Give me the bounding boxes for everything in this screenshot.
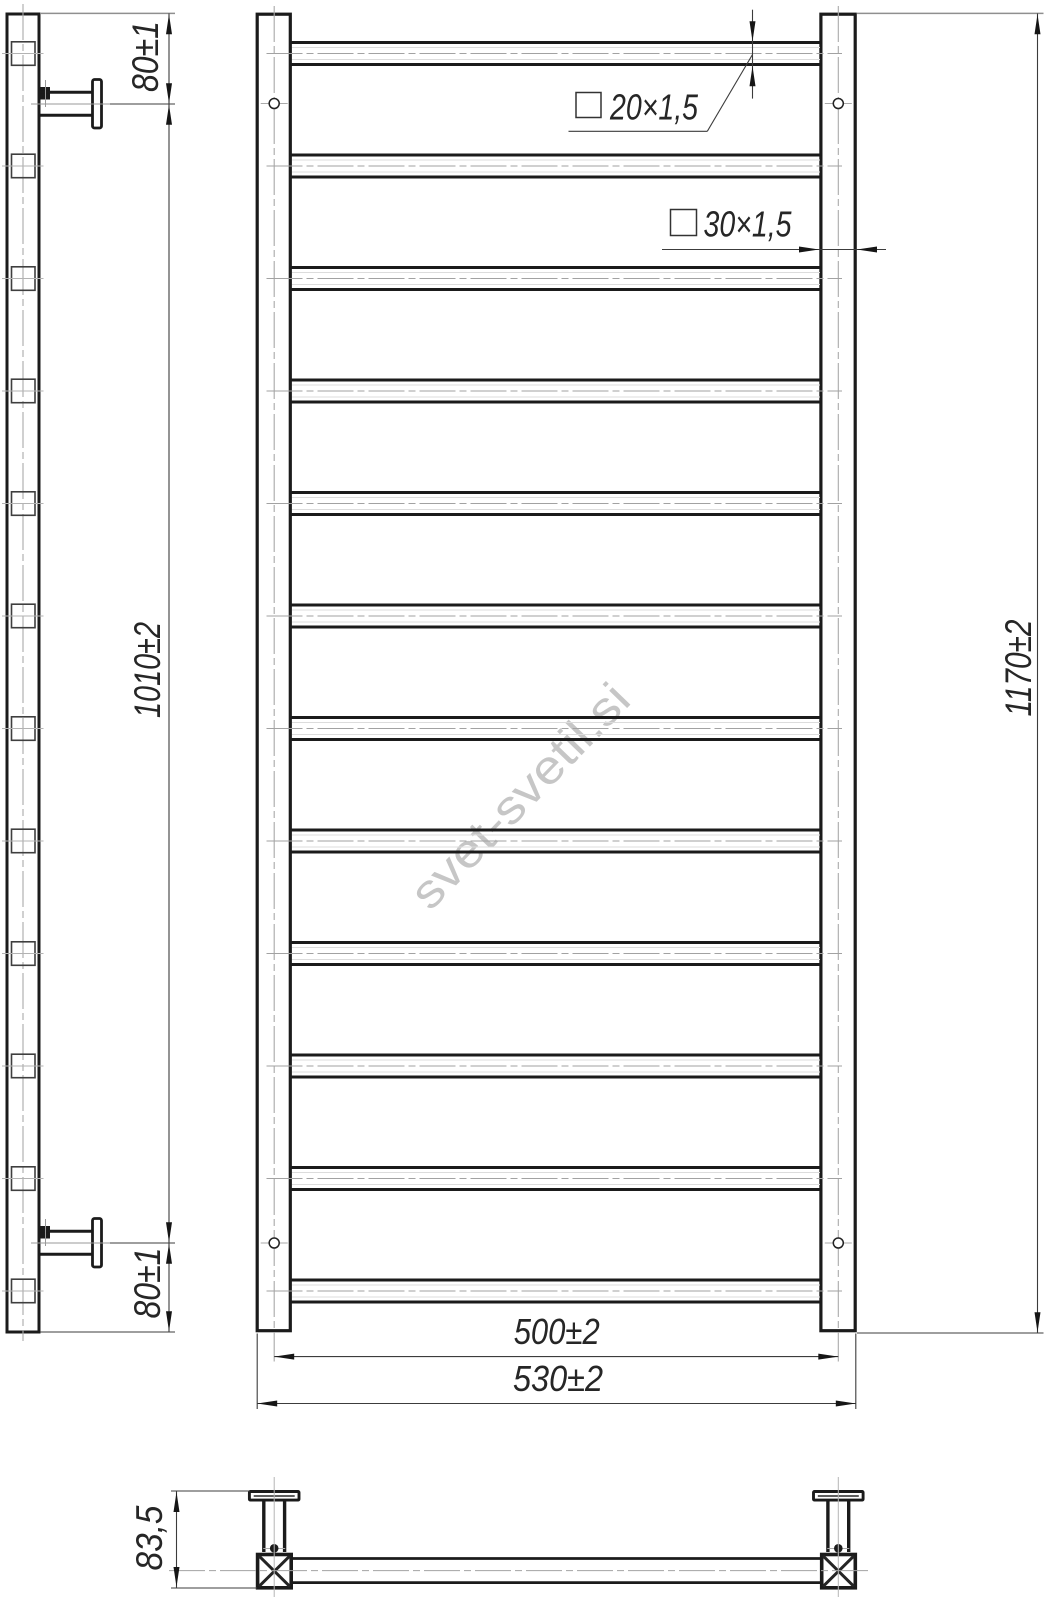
svg-text:83,5: 83,5 [129,1505,170,1570]
svg-text:1170±2: 1170±2 [998,619,1039,716]
svg-text:80±1: 80±1 [127,1248,168,1319]
svg-text:30×1,5: 30×1,5 [704,204,793,245]
svg-text:500±2: 500±2 [514,1311,600,1352]
svg-text:1010±2: 1010±2 [127,622,168,718]
svg-text:530±2: 530±2 [513,1358,603,1399]
svg-text:80±1: 80±1 [125,21,166,92]
svg-text:20×1,5: 20×1,5 [609,87,699,128]
